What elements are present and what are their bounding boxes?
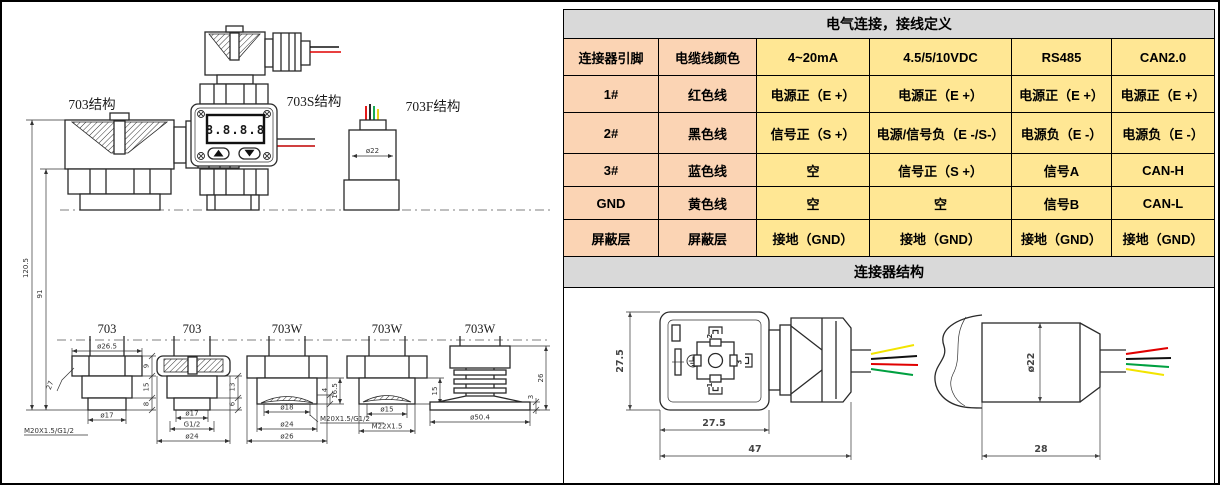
dim-text: 4	[321, 387, 329, 392]
fitting-label: 703W	[465, 322, 496, 336]
wire-red	[1126, 348, 1168, 354]
pin-cell: GND	[564, 187, 659, 220]
wire-color-cell: 屏蔽层	[659, 220, 757, 257]
dim-text: ø17	[185, 410, 198, 418]
down-button	[239, 148, 260, 159]
dim-text: ø24	[280, 421, 294, 429]
table-cell: 电源正（E +）	[870, 76, 1012, 113]
column-header: 4.5/5/10VDC	[870, 39, 1012, 76]
table-cell: 接地（GND）	[870, 220, 1012, 257]
wire-black	[871, 356, 917, 359]
label-703s: 703S结构	[287, 94, 342, 109]
fitting-label: 703W	[372, 322, 403, 336]
fitting-label: 703	[183, 322, 202, 336]
structure-drawings: 120.5 91 703结构	[2, 2, 562, 483]
dim-text: M22X1.5	[372, 423, 403, 431]
pin-cell: 3#	[564, 154, 659, 187]
dim-length: 47	[748, 444, 761, 455]
lcd-digits: 8.8.8.8	[206, 122, 266, 137]
pin-cell: 屏蔽层	[564, 220, 659, 257]
table-cell: 接地（GND）	[1112, 220, 1215, 257]
table-cell: 空	[870, 187, 1012, 220]
structure-drawings-panel: 120.5 91 703结构	[2, 2, 562, 483]
wire-color-cell: 红色线	[659, 76, 757, 113]
dim-text: ø15	[380, 406, 393, 414]
pin-label-2: 2	[706, 333, 714, 338]
connector-drawing-cell: 27.5	[564, 288, 1215, 485]
table-cell: 电源正（E +）	[757, 76, 870, 113]
dim-text: ø50.4	[470, 414, 490, 422]
dim-text: 15	[143, 383, 151, 392]
dim-text: 16.5	[331, 383, 339, 399]
table-cell: 电源负（E -）	[1012, 113, 1112, 154]
thread-spec: M20X1.5/G1/2	[24, 427, 74, 435]
column-header: 电缆线颜色	[659, 39, 757, 76]
table-cell: 空	[757, 187, 870, 220]
wire-red	[871, 364, 918, 365]
dim-width: 27.5	[702, 418, 725, 429]
din-connector-drawing: 27.5	[615, 312, 918, 460]
dim-f-diameter: ø22	[366, 147, 379, 155]
dim-text: ø17	[100, 412, 113, 420]
table-row: 屏蔽层 屏蔽层 接地（GND） 接地（GND） 接地（GND） 接地（GND）	[564, 220, 1215, 257]
table-row: 1# 红色线 电源正（E +） 电源正（E +） 电源正（E +） 电源正（E …	[564, 76, 1215, 113]
wiring-panel: 电气连接，接线定义 连接器引脚 电缆线颜色 4~20mA 4.5/5/10VDC…	[563, 9, 1215, 485]
table-row: 2# 黑色线 信号正（S +） 电源/信号负（E -/S-） 电源负（E -） …	[564, 113, 1215, 154]
dim-text: ø18	[280, 404, 293, 412]
thread-spec: M20X1.5/G1/2	[320, 415, 370, 423]
table-cell: 信号B	[1012, 187, 1112, 220]
wire-black	[1126, 358, 1171, 359]
dim-body-height: 91	[36, 290, 44, 299]
table-cell: 空	[757, 154, 870, 187]
wiring-table: 电气连接，接线定义 连接器引脚 电缆线颜色 4~20mA 4.5/5/10VDC…	[563, 9, 1215, 485]
table-cell: CAN-L	[1112, 187, 1215, 220]
table-cell: 电源正（E +）	[1012, 76, 1112, 113]
dim-text: ø26	[280, 433, 294, 441]
table-cell: 信号正（S +）	[757, 113, 870, 154]
pin-cell: 2#	[564, 113, 659, 154]
column-header: CAN2.0	[1112, 39, 1215, 76]
dim-text: ø26.5	[97, 343, 117, 351]
dim-text: 26	[537, 373, 545, 382]
table-cell: 接地（GND）	[757, 220, 870, 257]
dim-length: 28	[1034, 444, 1048, 455]
label-703f: 703F结构	[406, 99, 461, 114]
dim-text: 9	[143, 364, 151, 368]
column-header: 连接器引脚	[564, 39, 659, 76]
table-cell: 电源/信号负（E -/S-）	[870, 113, 1012, 154]
table-row: 3# 蓝色线 空 信号正（S +） 信号A CAN-H	[564, 154, 1215, 187]
column-header: RS485	[1012, 39, 1112, 76]
section-title: 连接器结构	[564, 257, 1215, 288]
fitting-703-a: 703 ø26.5 27 9 15 8 ø17 M20X1.5/G1/2	[24, 322, 156, 435]
pin-cell: 1#	[564, 76, 659, 113]
table-title: 电气连接，接线定义	[564, 10, 1215, 39]
dim-text: ø24	[185, 433, 199, 441]
fitting-label: 703W	[272, 322, 303, 336]
wire-green	[871, 369, 913, 375]
pin-label-1: 1	[706, 382, 714, 387]
dim-text: 3	[527, 395, 535, 399]
table-cell: 接地（GND）	[1012, 220, 1112, 257]
table-cell: 信号正（S +）	[870, 154, 1012, 187]
wire-green	[1126, 364, 1169, 367]
pin-label-3: 3	[736, 359, 744, 364]
table-row: GND 黄色线 空 空 信号B CAN-L	[564, 187, 1215, 220]
connector-drawings: 27.5	[564, 288, 1213, 485]
column-header: 4~20mA	[757, 39, 870, 76]
fitting-label: 703	[98, 322, 117, 336]
fitting-703w-c: 703W 3 26 ø50.4	[430, 322, 550, 426]
dim-text: G1/2	[184, 421, 201, 429]
table-cell: 电源正（E +）	[1112, 76, 1215, 113]
transmitter-703f: ø22	[344, 104, 399, 210]
transmitter-703s: 8.8.8.8	[191, 26, 341, 210]
wire-color-cell: 黄色线	[659, 187, 757, 220]
table-cell: 电源负（E -）	[1112, 113, 1215, 154]
wire-color-cell: 蓝色线	[659, 154, 757, 187]
label-703: 703结构	[68, 97, 115, 112]
up-button	[208, 148, 229, 159]
dim-diameter: ø22	[1026, 353, 1037, 373]
wire-yellow	[1126, 369, 1164, 375]
table-cell: 信号A	[1012, 154, 1112, 187]
dim-height: 27.5	[615, 349, 626, 372]
dim-text: 8	[143, 402, 151, 406]
dim-text: 15	[431, 387, 439, 396]
dim-total-height: 120.5	[22, 258, 30, 278]
cylindrical-connector-drawing: ø22 28	[935, 315, 1171, 460]
wire-color-cell: 黑色线	[659, 113, 757, 154]
wire-yellow	[871, 345, 914, 354]
dim-text: 27	[45, 380, 56, 391]
table-cell: CAN-H	[1112, 154, 1215, 187]
datasheet-page: 120.5 91 703结构	[0, 0, 1220, 485]
